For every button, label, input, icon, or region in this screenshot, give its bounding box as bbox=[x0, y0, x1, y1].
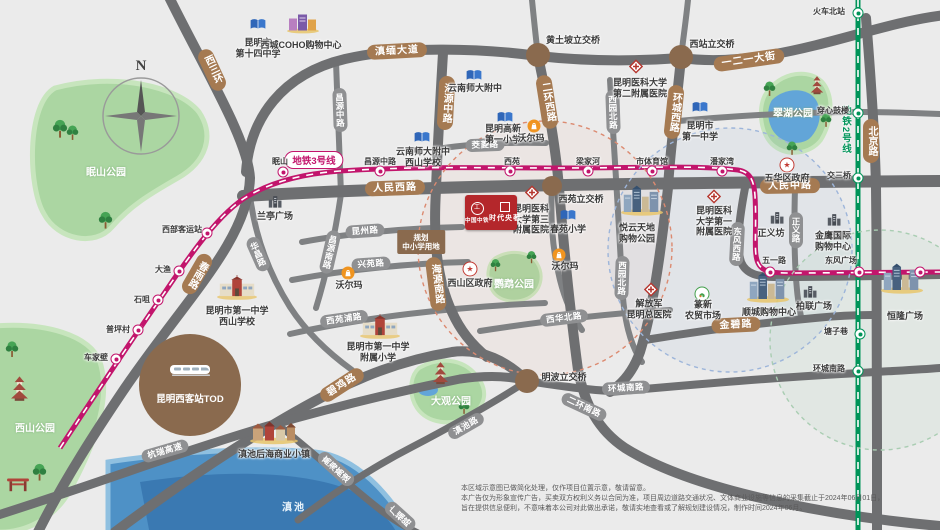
park-label: 西山公园 bbox=[15, 420, 55, 435]
hospital-icon bbox=[629, 60, 643, 79]
metro-station-label: 大渔 bbox=[155, 265, 171, 276]
school-big-icon bbox=[359, 314, 401, 344]
metro-station-icon bbox=[202, 228, 213, 239]
government-star-icon: ★ bbox=[780, 158, 795, 173]
metro-station-icon bbox=[111, 354, 122, 365]
project-name: 时代央著 bbox=[489, 213, 521, 223]
water-label: 滇池 bbox=[282, 499, 306, 514]
school-icon bbox=[414, 130, 431, 148]
building-icon bbox=[826, 213, 842, 231]
metro-station-icon bbox=[915, 267, 926, 278]
metro-station-icon bbox=[853, 108, 864, 119]
mall-icon bbox=[286, 12, 320, 39]
disclaimer-line: 本区域示意图已做简化处理，仅作项目位置示意，敬请留意。 bbox=[461, 484, 884, 494]
road-pill-昆州路: 昆州路 bbox=[345, 223, 385, 239]
crec-logo-icon: 工 bbox=[471, 202, 484, 215]
junction-label: 黄土坡立交桥 bbox=[546, 35, 600, 46]
metro-station-icon bbox=[765, 267, 776, 278]
road-pill-滇缅大道: 滇缅大道 bbox=[367, 42, 428, 60]
metro-station-icon bbox=[278, 167, 289, 178]
poi-label: 金鹰国际购物中心 bbox=[815, 231, 851, 252]
poi-label: 云南师大附中 bbox=[448, 83, 502, 94]
metro-station-icon bbox=[855, 329, 866, 340]
poi-label: 沃尔玛 bbox=[551, 261, 578, 272]
road-pill-兴苑路: 兴苑路 bbox=[351, 256, 391, 272]
poi-label: 柏联广场 bbox=[796, 301, 832, 312]
metro-station-label: 五一路 bbox=[762, 256, 786, 267]
disclaimer: 本区域示意图已做简化处理，仅作项目位置示意，敬请留意。本广告仅为形象宣传广告，买… bbox=[461, 484, 884, 514]
junction-label: 西站立交桥 bbox=[689, 39, 734, 50]
project-marker: 工 中国中铁 时代央著 bbox=[465, 195, 517, 230]
metro-station-label: 东风广场 bbox=[825, 256, 857, 267]
metro-station-label: 昌源中路 bbox=[364, 157, 396, 168]
metro-station-label: 市体育馆 bbox=[636, 157, 668, 168]
poi-label: 解放军昆明总医院 bbox=[626, 299, 671, 320]
metro-station-icon bbox=[853, 8, 864, 19]
project-logo-icon bbox=[500, 202, 510, 212]
government-star-icon: ★ bbox=[463, 262, 478, 277]
school-big-icon bbox=[216, 275, 258, 305]
metro-station-label: 塘子巷 bbox=[824, 327, 848, 338]
walmart-icon bbox=[528, 120, 541, 133]
junction-label: 明波立交桥 bbox=[541, 372, 586, 383]
poi-label: 篆新农贸市场 bbox=[685, 300, 721, 321]
complex-icon bbox=[619, 185, 665, 221]
walmart-icon bbox=[342, 267, 355, 280]
project-brand: 中国中铁 bbox=[465, 216, 489, 224]
poi-label: 昆明市第一中学 bbox=[682, 121, 718, 142]
poi-label: 沃尔玛 bbox=[517, 133, 544, 144]
poi-label: 昆明市第一中学西山学校 bbox=[205, 306, 268, 327]
metro-station-label: 火车北站 bbox=[813, 7, 845, 18]
metro-station-label: 交三桥 bbox=[827, 171, 851, 182]
planning-plot-label: 规划中小学用地 bbox=[397, 230, 445, 254]
poi-label: 悦云天地购物公园 bbox=[619, 223, 655, 244]
poi-label: 云南师大附中西山学校 bbox=[396, 147, 450, 168]
junction-label: 西苑立交桥 bbox=[558, 194, 603, 205]
junction-circle bbox=[526, 43, 550, 67]
junction-circle bbox=[515, 369, 539, 393]
metro-station-label: 西苑 bbox=[504, 157, 520, 168]
project-brand-block: 工 中国中铁 bbox=[465, 195, 489, 230]
metro-station-icon bbox=[174, 266, 185, 277]
disclaimer-line: 本广告仅为形象宣传广告，买卖双方权利义务以合同为准，项目周边道路交通状况、文体商… bbox=[461, 494, 884, 504]
town-icon bbox=[249, 419, 299, 450]
poi-label: 兰亭广场 bbox=[257, 211, 293, 222]
metro-station-icon bbox=[853, 173, 864, 184]
poi-label: 正义坊 bbox=[757, 228, 784, 239]
poi-label: 顺城购物中心 bbox=[742, 307, 796, 318]
poi-label: 昆明医科大学第二附属医院 bbox=[613, 78, 667, 99]
road-pill-西园北路: 西园北路 bbox=[614, 256, 630, 300]
compass: N bbox=[96, 58, 186, 173]
metro-line3-label: 地铁3号线 bbox=[284, 151, 343, 169]
metro-station-label: 车家壁 bbox=[84, 353, 108, 364]
school-icon bbox=[250, 17, 267, 35]
compass-north-label: N bbox=[96, 58, 186, 75]
metro-station-label: 普坪村 bbox=[106, 325, 130, 336]
metro-station-icon bbox=[153, 295, 164, 306]
park-label: 翠湖公园 bbox=[773, 105, 813, 120]
park-label: 鹦鹉公园 bbox=[494, 276, 534, 291]
metro-station-icon bbox=[133, 325, 144, 336]
compass-rose-icon bbox=[100, 75, 182, 157]
hospital-icon bbox=[525, 186, 539, 205]
poi-label: 西山区政府 bbox=[447, 278, 492, 289]
metro-station-label: 环城南路 bbox=[813, 364, 845, 375]
walmart-icon bbox=[553, 249, 566, 262]
tod-circle bbox=[139, 334, 241, 436]
metro-station-label: 眠山 bbox=[272, 157, 288, 168]
school-icon bbox=[692, 100, 709, 118]
poi-label: 昆明高新第一小学 bbox=[485, 124, 521, 145]
poi-label: 春苑小学 bbox=[550, 224, 586, 235]
road-pill-北京路: 北京路 bbox=[863, 119, 879, 163]
road-pill-环城南路: 环城南路 bbox=[602, 380, 651, 395]
poi-label: 恒隆广场 bbox=[887, 311, 923, 322]
metro-station-label: 梁家河 bbox=[576, 157, 600, 168]
poi-label: 沃尔玛 bbox=[335, 280, 362, 291]
poi-label: 五华区政府 bbox=[764, 173, 809, 184]
metro-station-label: 潘家湾 bbox=[710, 157, 734, 168]
poi-label: 西城COHO购物中心 bbox=[260, 40, 341, 51]
road-mingbo-link bbox=[527, 381, 612, 391]
poi-label: 滇池后海商业小镇 bbox=[238, 449, 310, 460]
tod-label: 昆明西客站TOD bbox=[156, 391, 223, 405]
disclaimer-line: 旨在提供信息便利，不意味着本公司对此做出承诺，敬请实地查看或了解规划建设情况，制… bbox=[461, 504, 884, 514]
project-name-block: 时代央著 bbox=[489, 195, 521, 230]
road-pill-人民西路: 人民西路 bbox=[365, 179, 425, 196]
poi-label: 昆明医科大学第一附属医院 bbox=[696, 205, 732, 237]
metro-station-icon bbox=[853, 366, 864, 377]
road-pill-昌源中路: 昌源中路 bbox=[332, 88, 348, 132]
poi-label: 昆明市第一中学附属小学 bbox=[346, 342, 409, 363]
road-pill-正义路: 正义路 bbox=[789, 212, 803, 248]
metro-station-label: 穿心鼓楼 bbox=[817, 106, 849, 117]
metro-station-label: 西部客运站 bbox=[162, 225, 202, 236]
building-icon bbox=[769, 211, 785, 229]
metro-station-icon bbox=[854, 267, 865, 278]
metro-station-label: 石咀 bbox=[134, 295, 150, 306]
park-label: 大观公园 bbox=[431, 393, 471, 408]
location-map: N 工 中国中铁 时代央著 昆明西客站TOD 规划中小学用地 西三环滇缅大道一二… bbox=[0, 0, 940, 530]
